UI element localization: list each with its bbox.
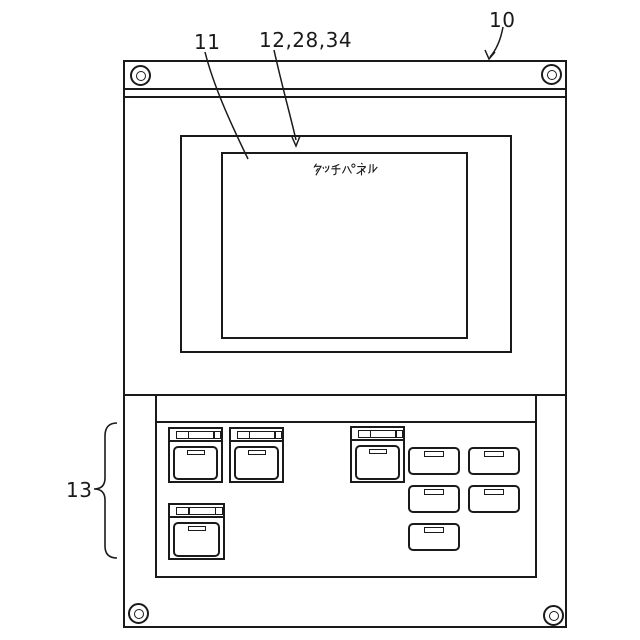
key-cover-strip xyxy=(170,429,221,442)
key-cover-strip xyxy=(231,429,282,442)
ref-label-device: 10 xyxy=(489,8,515,32)
key-label-slot xyxy=(188,526,206,531)
key-cap xyxy=(173,446,218,480)
device-body: タッチパネル xyxy=(123,60,567,628)
key-cap xyxy=(173,522,220,557)
key-cover-strip xyxy=(170,505,223,518)
key-cover-tab xyxy=(358,430,403,438)
key-label-slot xyxy=(424,489,444,495)
screw-icon-top-right xyxy=(541,64,562,85)
large-key-3 xyxy=(350,426,405,483)
screw-icon-bottom-right xyxy=(543,605,564,626)
key-label-slot xyxy=(424,451,444,457)
small-key-4 xyxy=(468,485,520,513)
display-bezel: タッチパネル xyxy=(180,135,512,353)
key-cover-tab xyxy=(176,431,221,439)
top-bar-seam-line xyxy=(125,96,565,98)
arrowhead-device-icon xyxy=(485,50,495,59)
screw-icon-bottom-left xyxy=(128,603,149,624)
screw-icon-top-left xyxy=(130,65,151,86)
touch-panel-screen: タッチパネル xyxy=(221,152,468,339)
key-label-slot xyxy=(248,450,266,455)
touch-panel-label-drawing-icon xyxy=(312,162,378,177)
key-cover-strip xyxy=(352,428,403,441)
key-label-slot xyxy=(484,451,504,457)
key-panel-top-line xyxy=(157,421,535,423)
large-key-2 xyxy=(229,427,284,483)
key-label-slot xyxy=(424,527,444,533)
key-cover-tab xyxy=(176,507,223,515)
key-label-slot xyxy=(187,450,205,455)
large-key-1 xyxy=(168,427,223,483)
keypad-brace-icon xyxy=(94,423,117,558)
small-key-2 xyxy=(468,447,520,475)
patent-figure: 10 11 12,28,34 13 タッチパネル xyxy=(0,0,640,640)
key-label-slot xyxy=(369,449,387,454)
ref-label-screen: 11 xyxy=(194,30,220,54)
ref-label-key-section: 13 xyxy=(66,478,92,502)
key-cover-tab xyxy=(237,431,282,439)
small-key-1 xyxy=(408,447,460,475)
large-key-4 xyxy=(168,503,225,560)
key-panel xyxy=(155,394,537,578)
key-cap xyxy=(234,446,279,480)
top-mounting-bar xyxy=(125,62,565,90)
ref-label-touch-panel: 12,28,34 xyxy=(259,28,352,52)
small-key-3 xyxy=(408,485,460,513)
key-label-slot xyxy=(484,489,504,495)
key-cap xyxy=(355,445,400,480)
touch-panel-label: タッチパネル xyxy=(223,162,466,177)
small-key-5 xyxy=(408,523,460,551)
